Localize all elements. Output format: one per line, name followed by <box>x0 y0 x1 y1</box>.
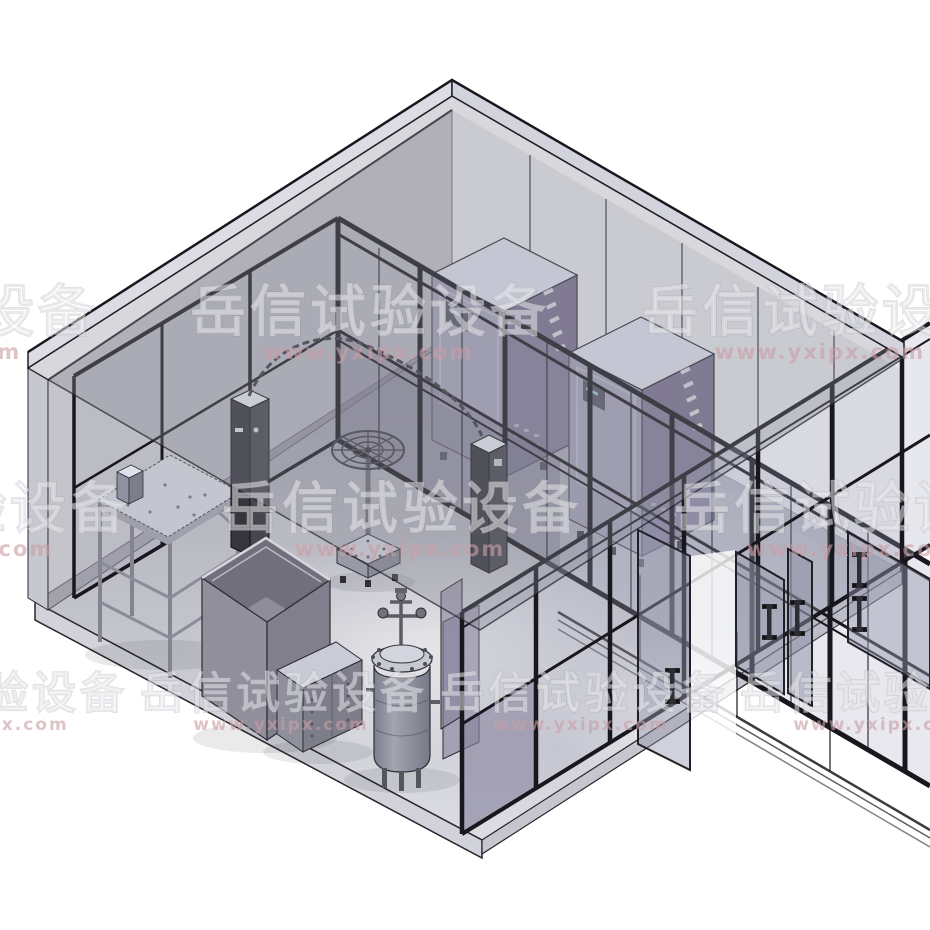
watermark-text: 岳信试验设备 <box>440 668 728 719</box>
watermark-url: www.yxipx.com <box>793 715 930 735</box>
watermark-url: www.yxipx.com <box>493 715 668 735</box>
watermark-text: 岳信试验设备 <box>140 668 428 719</box>
watermark-text: 岳信试验设备 <box>222 477 582 542</box>
watermark-url: www.yxipx.com <box>0 537 53 561</box>
watermark-text: 岳信试验设备 <box>674 477 930 542</box>
watermark-url: www.yxipx.com <box>193 715 368 735</box>
cad-render-canvas: 岳信试验设备 岳信试验设备 岳信试验设备 www.yxipx.com www.y… <box>0 0 930 930</box>
watermark-url: www.yxipx.com <box>715 340 926 364</box>
watermark-text: 岳信试验设备 <box>740 668 930 719</box>
watermark-text: 岳信试验设备 <box>0 668 128 719</box>
watermark-text: 岳信试验设备 <box>0 280 98 345</box>
watermark-text: 岳信试验设备 <box>642 280 930 345</box>
watermark-url: www.yxipx.com <box>263 340 474 364</box>
watermark-text: 岳信试验设备 <box>190 280 550 345</box>
watermark-url: www.yxipx.com <box>295 537 506 561</box>
watermark-url: www.yxipx.com <box>747 537 930 561</box>
watermark-url: www.yxipx.com <box>0 340 21 364</box>
watermark-text: 岳信试验设备 <box>0 477 130 542</box>
scene-svg: 岳信试验设备 岳信试验设备 岳信试验设备 www.yxipx.com www.y… <box>0 0 930 930</box>
watermark-url: www.yxipx.com <box>0 715 69 735</box>
